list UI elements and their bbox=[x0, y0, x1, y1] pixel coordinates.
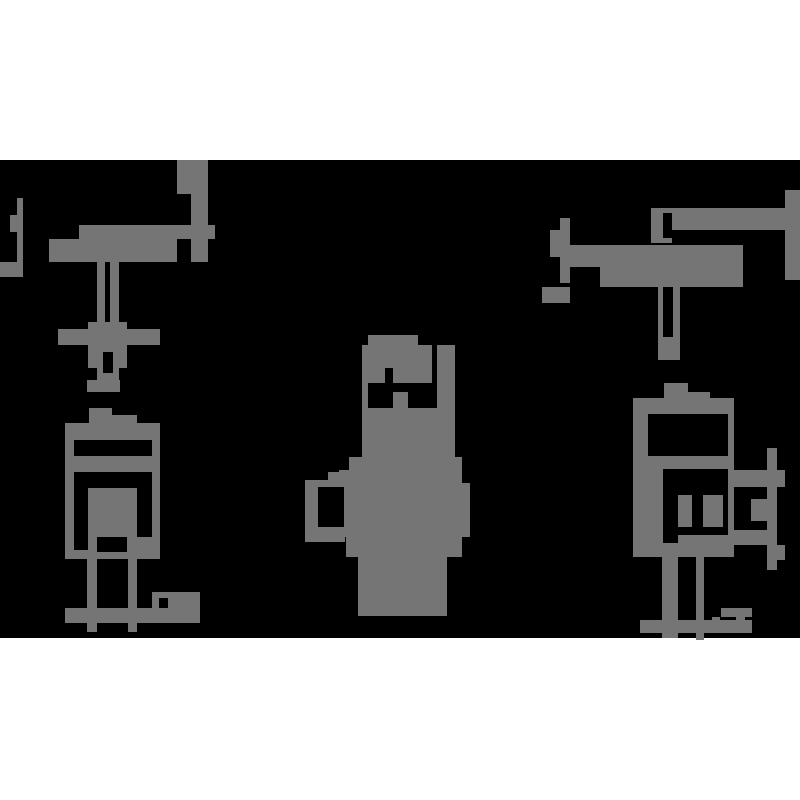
ink-block bbox=[87, 380, 120, 392]
cutout-block bbox=[385, 368, 393, 383]
ink-block bbox=[368, 335, 418, 345]
ink-block bbox=[358, 557, 447, 616]
cutout-block bbox=[432, 345, 437, 408]
cutout-block bbox=[393, 383, 408, 392]
ink-block bbox=[110, 262, 119, 322]
ink-block bbox=[648, 469, 663, 543]
ink-block bbox=[339, 470, 462, 483]
ink-block bbox=[550, 230, 570, 257]
ink-block bbox=[703, 495, 723, 527]
ink-block bbox=[65, 608, 200, 623]
ink-block bbox=[177, 160, 208, 194]
ink-block bbox=[65, 456, 160, 472]
ink-block bbox=[712, 617, 720, 625]
ink-block bbox=[127, 537, 153, 552]
pixelated-illustration bbox=[0, 0, 800, 800]
ink-block bbox=[736, 617, 745, 625]
cutout-block bbox=[368, 383, 393, 408]
ink-block bbox=[346, 537, 462, 557]
ink-block bbox=[65, 423, 160, 440]
ink-block bbox=[721, 608, 752, 617]
ink-block bbox=[664, 392, 710, 398]
ink-block bbox=[89, 415, 137, 424]
ink-block bbox=[177, 225, 215, 239]
cutout-block bbox=[318, 487, 344, 527]
ink-block bbox=[344, 483, 470, 537]
ink-block bbox=[678, 535, 734, 543]
ink-block bbox=[633, 414, 648, 557]
ink-block bbox=[633, 398, 734, 414]
pixelated-illustration-page bbox=[0, 0, 800, 800]
ink-block bbox=[542, 287, 570, 303]
ink-block bbox=[640, 620, 752, 633]
ink-block bbox=[767, 448, 777, 570]
ink-block bbox=[633, 543, 734, 557]
ink-block bbox=[49, 239, 177, 262]
ink-block bbox=[10, 215, 23, 232]
ink-block bbox=[633, 456, 734, 469]
ink-block bbox=[678, 495, 692, 527]
cutout-block bbox=[103, 352, 113, 373]
ink-block bbox=[0, 262, 20, 277]
cutout-block bbox=[663, 287, 673, 337]
cutout-block bbox=[97, 537, 127, 552]
ink-block bbox=[89, 408, 112, 416]
cutout-block bbox=[663, 213, 672, 238]
ink-block bbox=[79, 225, 177, 239]
cutout-block bbox=[408, 383, 432, 408]
ink-block bbox=[777, 545, 785, 560]
ink-block bbox=[751, 499, 767, 521]
ink-block bbox=[349, 457, 462, 470]
ink-block bbox=[600, 257, 743, 287]
ink-block bbox=[655, 208, 800, 230]
ink-block bbox=[728, 530, 777, 545]
ink-block bbox=[785, 190, 800, 280]
cutout-block bbox=[159, 598, 168, 608]
ink-block bbox=[97, 262, 105, 322]
